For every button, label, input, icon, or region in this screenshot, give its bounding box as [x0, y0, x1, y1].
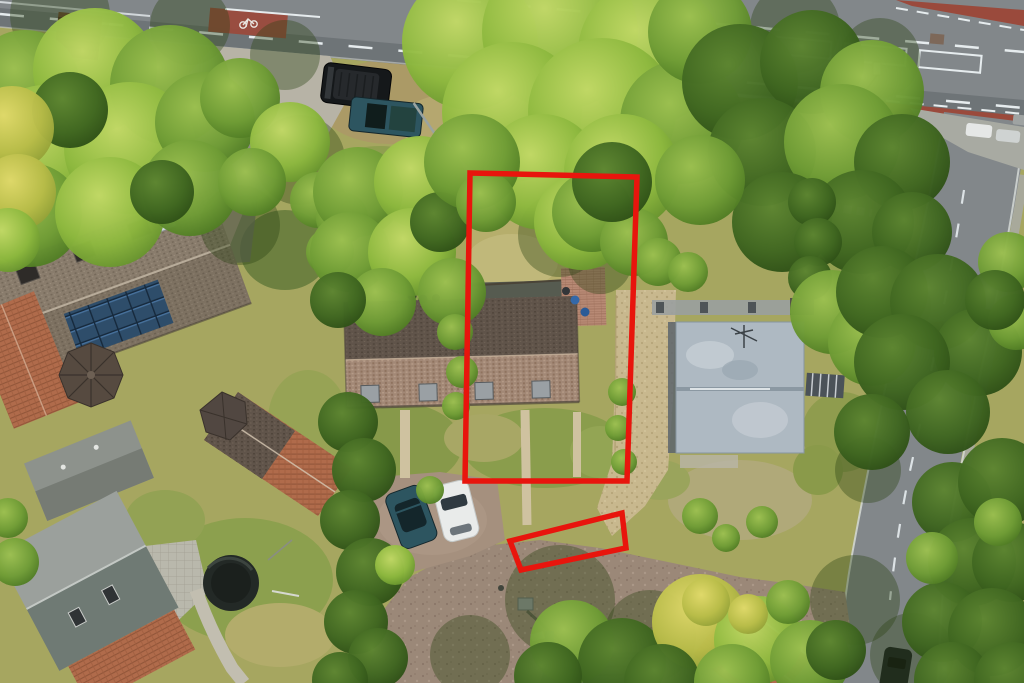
tree-canopy [611, 449, 637, 475]
tree-canopy [655, 135, 745, 225]
tree-canopy [906, 370, 990, 454]
tree-canopy [456, 172, 516, 232]
blue-bin [581, 308, 590, 317]
aerial-photo [0, 0, 1024, 683]
dormer-window [475, 382, 493, 399]
tree-canopy [218, 148, 286, 216]
steps-structure [805, 373, 845, 399]
tree-canopy [728, 594, 768, 634]
road-patch [930, 33, 945, 44]
tree-canopy [668, 252, 708, 292]
tree-canopy [746, 506, 778, 538]
rear-deck [680, 455, 738, 468]
garden-wall [652, 300, 812, 315]
dormer-window [532, 381, 550, 398]
tree-canopy [416, 476, 444, 504]
tree-canopy [806, 620, 866, 680]
tree-canopy [766, 580, 810, 624]
gazebo-roof [59, 343, 123, 407]
drain-cover [498, 585, 504, 591]
tree-canopy [965, 270, 1024, 330]
tree-canopy [375, 545, 415, 585]
tree-canopy [906, 532, 958, 584]
tree-canopy [834, 394, 910, 470]
tree-canopy [446, 356, 478, 388]
trampoline [203, 555, 259, 611]
tree-canopy [572, 142, 652, 222]
aerial-photo-canvas [0, 0, 1024, 683]
tree-canopy [130, 160, 194, 224]
tree-canopy [682, 498, 718, 534]
tree-canopy [310, 272, 366, 328]
tree-canopy [682, 578, 730, 626]
blue-bin [571, 296, 580, 305]
tree-canopy [974, 498, 1022, 546]
footpath-plot-1 [525, 410, 527, 525]
dormer-window [419, 384, 437, 401]
tree-canopy [712, 524, 740, 552]
